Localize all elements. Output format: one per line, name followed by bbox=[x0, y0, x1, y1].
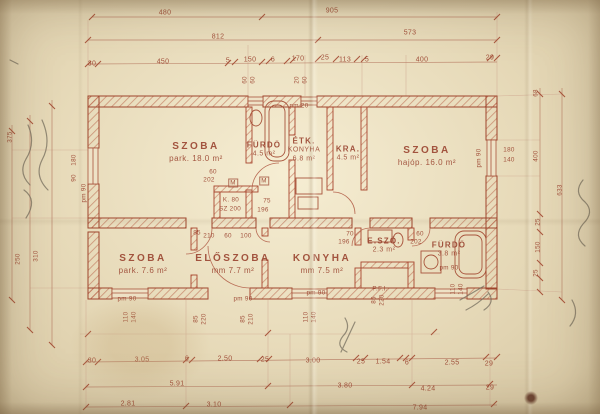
dimension-label: 170 bbox=[292, 56, 305, 63]
room-label: SZOBApark. 18.0 m² bbox=[169, 141, 223, 164]
dimension-label: 29 bbox=[486, 385, 494, 392]
dimension-label-vertical: 60 bbox=[302, 76, 309, 84]
room-detail: park. 7.6 m² bbox=[119, 265, 168, 275]
dimension-label-vertical: 90 bbox=[71, 174, 78, 182]
dimension-label: 400 bbox=[416, 57, 429, 64]
spec-label: 140 bbox=[503, 157, 514, 164]
dimension-label: 3.00 bbox=[306, 358, 321, 365]
dimension-label-vertical: 85 bbox=[240, 315, 247, 323]
room-label: ELŐSZOBAmm 7.7 m² bbox=[195, 253, 271, 276]
dimension-label-vertical: 210 bbox=[248, 313, 255, 324]
spec-label: 210 bbox=[203, 233, 214, 240]
dimension-label-vertical: 110 bbox=[450, 284, 457, 295]
dimension-label-vertical: 25 bbox=[533, 269, 540, 277]
dimension-label-vertical: 85 bbox=[371, 296, 378, 304]
spec-label: 180 bbox=[503, 147, 514, 154]
room-detail: KONYHA bbox=[288, 146, 321, 155]
dimension-label-vertical: 60 bbox=[242, 76, 249, 84]
room-name: SZOBA bbox=[398, 145, 456, 158]
dimension-label: 905 bbox=[326, 8, 339, 15]
spec-label: 75 bbox=[263, 198, 271, 205]
dimension-label-vertical: 60 bbox=[250, 76, 257, 84]
spec-label: pm 90 bbox=[233, 296, 252, 303]
room-name: ELŐSZOBA bbox=[195, 253, 271, 266]
spec-label: 70 bbox=[346, 231, 354, 238]
dimension-label-vertical: 220 bbox=[201, 313, 208, 324]
dimension-label-vertical: 140 bbox=[311, 311, 318, 322]
dimension-label: 3.05 bbox=[135, 357, 150, 364]
dimension-label: 6 bbox=[271, 57, 275, 64]
room-label: ÉTK.KONYHA6.8 m² bbox=[288, 136, 321, 164]
spec-label: 196 bbox=[338, 239, 349, 246]
room-detail: park. 18.0 m² bbox=[169, 153, 223, 163]
dimension-label: 5.91 bbox=[170, 381, 185, 388]
dimension-label: 573 bbox=[404, 30, 417, 37]
spec-label: 100 bbox=[240, 233, 251, 240]
dimension-label: 6 bbox=[185, 356, 189, 363]
dimension-label: 6 bbox=[405, 360, 409, 367]
dimension-label: 2.81 bbox=[121, 401, 136, 408]
room-name: ÉTK. bbox=[288, 136, 321, 146]
spec-label: pm 20 bbox=[289, 103, 308, 110]
dimension-label-vertical: 310 bbox=[33, 250, 40, 261]
room-name: FÜRDŐ bbox=[247, 141, 281, 151]
dimension-label: 113 bbox=[339, 57, 351, 64]
spec-label: M bbox=[228, 179, 238, 188]
dimension-label-vertical: 25 bbox=[535, 218, 542, 226]
room-name: SZOBA bbox=[169, 141, 223, 154]
room-name: KONYHA bbox=[293, 253, 351, 266]
dimension-label-vertical: 140 bbox=[458, 283, 465, 294]
dimension-label: 5 bbox=[365, 57, 369, 64]
plan-labels: SZOBApark. 18.0 m²FÜRDŐ4.5 m²ÉTK.KONYHA6… bbox=[0, 0, 600, 414]
spec-label: 202 bbox=[410, 239, 421, 246]
spec-label: M bbox=[259, 177, 269, 186]
spec-label: P.F.I. bbox=[372, 286, 387, 293]
room-name: KRA. bbox=[336, 145, 360, 155]
room-label: E.SZŐ.2.3 m² bbox=[367, 237, 400, 256]
dimension-label-vertical: 250 bbox=[15, 253, 22, 264]
spec-label: 60 bbox=[224, 233, 232, 240]
dimension-label: 450 bbox=[157, 59, 170, 66]
dimension-label: 25 bbox=[321, 55, 329, 62]
dimension-label-vertical: 85 bbox=[193, 315, 200, 323]
spec-label: 85 bbox=[193, 230, 201, 237]
room-label: KRA.4.5 m² bbox=[336, 145, 360, 164]
room-name: E.SZŐ. bbox=[367, 237, 400, 247]
dimension-label-vertical: 110 bbox=[303, 312, 310, 323]
dimension-label: 7.94 bbox=[413, 405, 428, 412]
room-detail: 4.5 m² bbox=[247, 151, 281, 160]
room-detail: mm 7.5 m² bbox=[293, 265, 351, 275]
room-detail: mm 7.7 m² bbox=[195, 265, 271, 275]
dimension-label: 30 bbox=[88, 358, 96, 365]
spec-label: pm 90 bbox=[117, 296, 136, 303]
dimension-label-vertical: 400 bbox=[533, 150, 540, 161]
spec-label: 196 bbox=[257, 207, 268, 214]
dimension-label-vertical: pm 90 bbox=[81, 183, 88, 202]
spec-label: 60 bbox=[416, 231, 424, 238]
dimension-label-vertical: 375 bbox=[7, 131, 14, 142]
dimension-label-vertical: 220 bbox=[379, 294, 386, 305]
dimension-label: 25 bbox=[357, 359, 365, 366]
dimension-label: 25 bbox=[261, 357, 269, 364]
room-detail: 3.8 m² bbox=[432, 251, 466, 260]
room-detail: 4.5 m² bbox=[336, 155, 360, 164]
dimension-label-vertical: 68 bbox=[533, 89, 540, 97]
dimension-label-vertical: 633 bbox=[557, 184, 564, 195]
room-label: FÜRDŐ4.5 m² bbox=[247, 141, 281, 160]
dimension-label: 5 bbox=[226, 58, 230, 65]
dimension-label: 29 bbox=[486, 55, 494, 62]
room-label: SZOBApark. 7.6 m² bbox=[119, 253, 168, 276]
dimension-label: 3.80 bbox=[338, 383, 353, 390]
dimension-label: 29 bbox=[485, 361, 493, 368]
room-label: FÜRDŐ3.8 m² bbox=[432, 241, 466, 260]
dimension-label-vertical: 20 bbox=[294, 76, 301, 84]
dimension-label: 2.55 bbox=[445, 360, 460, 367]
room-label: KONYHAmm 7.5 m² bbox=[293, 253, 351, 276]
dimension-label-vertical: pm 90 bbox=[476, 148, 483, 167]
room-name: SZOBA bbox=[119, 253, 168, 266]
dimension-label: 3.10 bbox=[207, 402, 222, 409]
dimension-label: 30 bbox=[88, 61, 96, 68]
dimension-label: 4.24 bbox=[421, 386, 436, 393]
dimension-label: 2.50 bbox=[218, 356, 233, 363]
room-detail: 6.8 m² bbox=[288, 155, 321, 164]
dimension-label: 1.54 bbox=[376, 359, 391, 366]
dimension-label-vertical: 150 bbox=[535, 241, 542, 252]
dimension-label: 480 bbox=[159, 10, 172, 17]
room-name: FÜRDŐ bbox=[432, 241, 466, 251]
spec-label: K. 80 bbox=[223, 197, 239, 204]
spec-label: 202 bbox=[203, 177, 214, 184]
dimension-label: 150 bbox=[244, 57, 257, 64]
dimension-label-vertical: 110 bbox=[123, 312, 130, 323]
spec-label: 60 bbox=[209, 169, 217, 176]
dimension-label: 812 bbox=[212, 34, 225, 41]
room-detail: hajóp. 16.0 m² bbox=[398, 157, 456, 167]
spec-label: SZ 200 bbox=[219, 206, 241, 213]
spec-label: pm 90 bbox=[439, 265, 458, 272]
floor-plan-sheet: SZOBApark. 18.0 m²FÜRDŐ4.5 m²ÉTK.KONYHA6… bbox=[0, 0, 600, 414]
room-detail: 2.3 m² bbox=[367, 247, 400, 256]
dimension-label-vertical: 180 bbox=[71, 154, 78, 165]
spec-label: pm 90 bbox=[306, 290, 325, 297]
room-label: SZOBAhajóp. 16.0 m² bbox=[398, 145, 456, 168]
dimension-label-vertical: 140 bbox=[131, 311, 138, 322]
